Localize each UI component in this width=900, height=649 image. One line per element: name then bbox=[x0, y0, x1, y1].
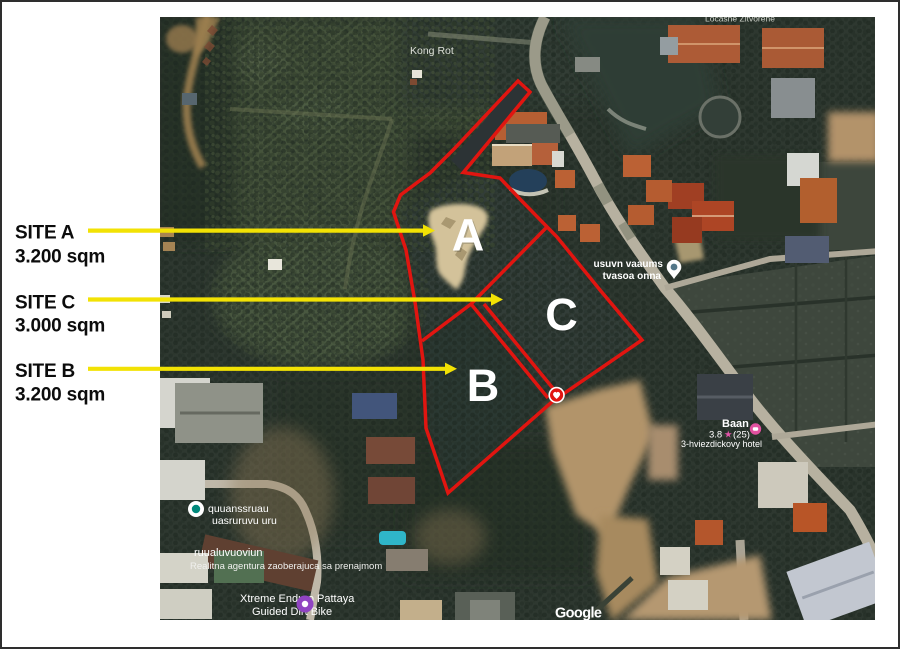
svg-text:B: B bbox=[467, 360, 500, 411]
svg-text:Google: Google bbox=[555, 606, 602, 622]
svg-text:Baan: Baan bbox=[722, 418, 749, 430]
svg-text:3.000 sqm: 3.000 sqm bbox=[15, 316, 105, 337]
svg-text:uasruruvu uru: uasruruvu uru bbox=[212, 515, 277, 527]
svg-text:usuvn vaaums: usuvn vaaums bbox=[594, 259, 664, 270]
svg-text:tvasoa onna: tvasoa onna bbox=[603, 271, 662, 282]
svg-text:Kong Rot: Kong Rot bbox=[410, 45, 454, 57]
svg-text:C: C bbox=[545, 289, 578, 340]
svg-text:ruualuvuoviun: ruualuvuoviun bbox=[194, 547, 263, 559]
svg-text:SITE B: SITE B bbox=[15, 361, 75, 382]
svg-text:Guided Dirt Bike: Guided Dirt Bike bbox=[252, 606, 332, 618]
svg-text:3.200 sqm: 3.200 sqm bbox=[15, 247, 105, 268]
svg-text:A: A bbox=[452, 210, 485, 261]
svg-text:SITE C: SITE C bbox=[15, 293, 76, 314]
svg-text:quuanssruau: quuanssruau bbox=[208, 503, 269, 515]
svg-text:3.200 sqm: 3.200 sqm bbox=[15, 385, 105, 406]
svg-text:SITE A: SITE A bbox=[15, 223, 75, 244]
svg-text:Realitna agentura zaoberajuca: Realitna agentura zaoberajuca sa prenajm… bbox=[190, 561, 382, 572]
svg-text:3-hviezdickovy hotel: 3-hviezdickovy hotel bbox=[681, 439, 762, 449]
